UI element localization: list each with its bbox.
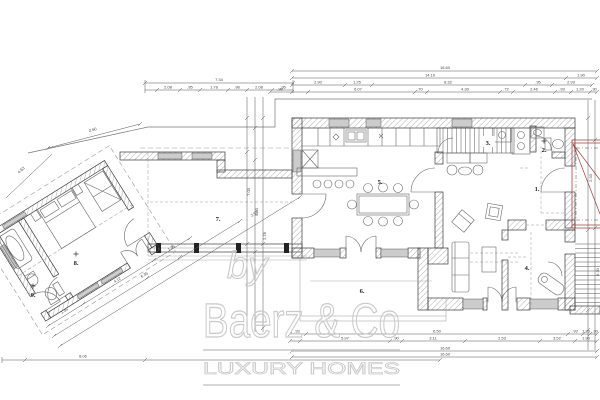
window [314,249,340,257]
dim-label: 2.08 [164,85,173,90]
room-label-5: 5. [378,179,383,186]
dim-label: 2.93 [567,80,576,85]
chimney [428,248,448,264]
room-label-4: 4. [525,265,530,272]
window [366,119,381,127]
room-label-3: 3. [486,140,491,147]
coffee-table [482,247,496,272]
room-label-9: 9. [31,292,36,299]
dim-label: 6.07 [354,87,363,92]
chair [394,217,403,226]
dim-label: 2.93 [588,173,593,182]
dim-label: 4.30 [461,87,470,92]
french-door [346,236,376,252]
dim-label: 2.08 [255,85,264,90]
chair [364,217,373,226]
watermark-tagline: LUXURY HOMES [203,359,400,378]
sink-symbol [333,134,339,140]
burner-symbol [379,134,383,138]
dim-label: 1.90 [577,73,586,78]
window [381,249,408,257]
dim-label: 3.52 [553,336,562,341]
room-label-6: 6. [360,288,365,295]
sink-unit [494,128,511,142]
dining-set [348,183,419,226]
dim-label: .30 [591,87,597,92]
left-wing [0,146,176,335]
dim-label: 1.20 [582,329,591,334]
dim-label: 16.60 [440,352,451,357]
watermark-brand: Baerz & Co [203,295,400,348]
chair [394,184,403,193]
dim-label: 4.63 [16,165,26,175]
entrance-door-arc [541,168,565,192]
armchair [452,210,475,233]
dim-label: .98 [234,85,240,90]
dim-label: .95 [535,80,541,85]
chair [379,217,388,226]
bar-stool [324,180,332,188]
window [329,119,349,127]
dim-label: 1.20 [576,87,585,92]
room-labels: 1. 2. 3. 4. 5. 6. 7. 8. 9. [31,136,547,299]
bar-stool [313,180,321,188]
dim-label: 2.90 [314,80,323,85]
room-label-7: 7. [216,216,221,223]
dim-label: 1.25 [353,80,362,85]
window [158,153,182,159]
watermark: by Baerz & Co LUXURY HOMES [203,245,400,385]
door-arc [302,194,326,218]
french-door [121,239,149,263]
kitchen [297,128,530,188]
living-area [447,165,503,292]
dim-label: 6.50 [433,329,442,334]
room4-furniture [536,262,566,297]
cooktop-unit [512,128,530,154]
dim-label: 8.32 [444,80,453,85]
window [463,299,483,309]
door-arc [411,168,435,192]
dim-label: 2.46 [530,87,539,92]
dim-label: .95 [187,85,193,90]
watermark-by: by [227,245,269,287]
dim-label: 2.60 [88,126,98,133]
dim-label: 2.78 [262,231,267,240]
bar-stool [335,180,343,188]
floor-plan-svg: 16.60 14.10 1.90 2.90 1.25 8.32 .95 2.93… [0,0,600,400]
kitchen-counter [302,128,440,146]
dining-table [357,194,409,215]
dim-label: 14.10 [425,73,436,78]
sofa [452,242,469,292]
dim-label: 7.34 [215,77,224,82]
cross-marker [74,252,79,257]
window [192,153,212,159]
dim-label: 6.30 [595,267,600,276]
dim-label: .93 [572,329,578,334]
dim-label: 8.06 [79,354,88,359]
chair [348,200,357,209]
side-table [485,203,502,220]
interior-stairs [437,128,514,163]
side-table [459,167,472,175]
dim-label: 7.03 [246,187,251,196]
window [530,299,558,309]
dim-label: .72 [503,87,509,92]
dim-label: .70 [417,87,423,92]
red-annex [572,140,600,228]
dim-label: 16.60 [440,65,451,70]
bar-stool [346,180,354,188]
window [77,283,99,299]
dim-label: .30 [592,329,598,334]
chair [364,184,373,193]
dim-label: 16.60 [440,346,451,351]
dim-label: 9.00 [254,207,259,216]
dim-label: 3.11 [429,336,437,341]
dim-label: 1.90 [582,336,591,341]
chaise-lounge [536,271,566,297]
dim-label: 1.78 [210,85,219,90]
chair [410,200,419,209]
chair [473,165,483,175]
bar-counter [297,168,357,176]
dim-label: .95 [280,85,286,90]
room-label-8: 8. [74,260,79,267]
dim-label: .93 [559,87,565,92]
chair [447,165,457,175]
window [452,119,472,127]
room-label-1: 1. [535,186,540,193]
washbasin-icon [25,271,36,280]
door-arc [117,219,145,247]
floor-plan-page: 16.60 14.10 1.90 2.90 1.25 8.32 .95 2.93… [0,0,600,400]
dim-label: 2.53 [498,336,507,341]
room-label-2: 2. [542,147,547,154]
